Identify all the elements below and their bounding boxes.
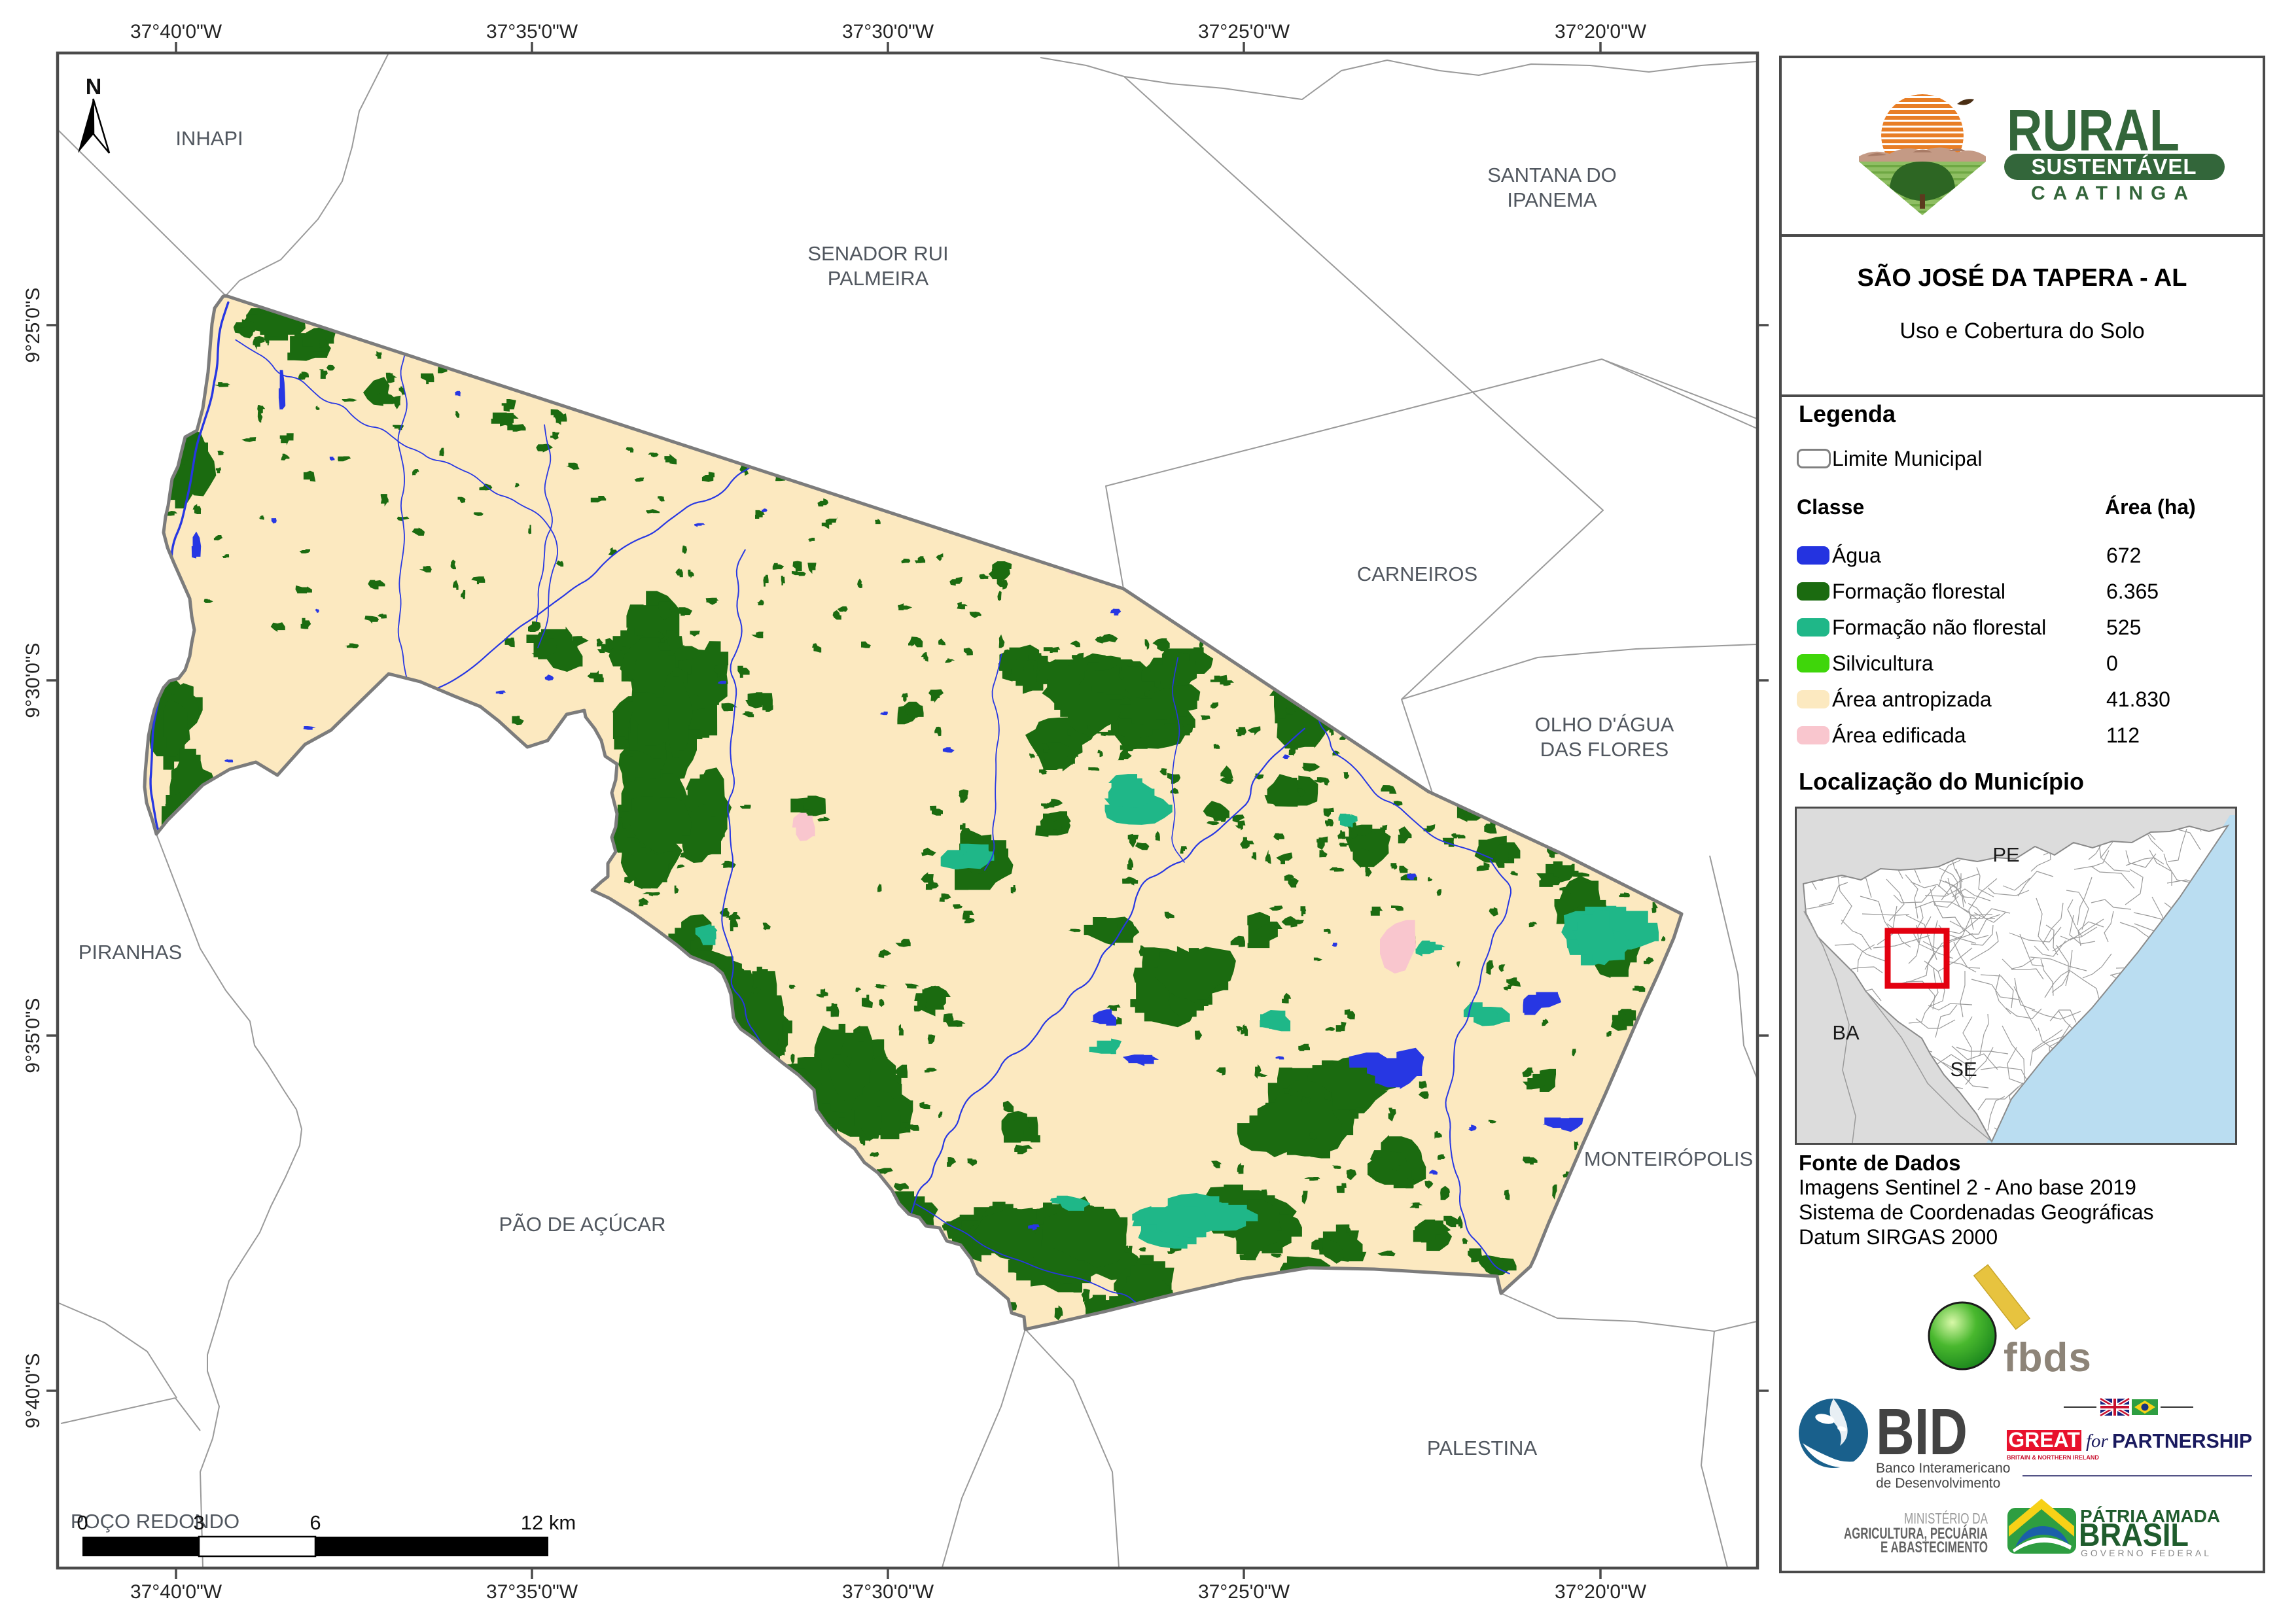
svg-text:MONTEIRÓPOLIS: MONTEIRÓPOLIS: [1584, 1147, 1753, 1170]
svg-text:37°20'0"W: 37°20'0"W: [1555, 1581, 1647, 1603]
svg-text:37°35'0"W: 37°35'0"W: [486, 1581, 578, 1603]
svg-text:fbds: fbds: [2004, 1335, 2092, 1380]
svg-text:GREAT: GREAT: [2008, 1428, 2080, 1452]
svg-text:for: for: [2086, 1431, 2109, 1452]
svg-text:PE: PE: [1992, 843, 2019, 866]
svg-text:SE: SE: [1950, 1058, 1977, 1081]
svg-text:BRITAIN & NORTHERN IRELAND: BRITAIN & NORTHERN IRELAND: [2007, 1454, 2099, 1461]
svg-text:12 km: 12 km: [521, 1511, 576, 1534]
svg-text:BID: BID: [1876, 1395, 1968, 1469]
svg-text:Banco Interamericano: Banco Interamericano: [1876, 1461, 2010, 1476]
svg-text:9°35'0"S: 9°35'0"S: [22, 998, 44, 1073]
svg-text:INHAPI: INHAPI: [175, 127, 243, 150]
svg-text:PARTNERSHIP: PARTNERSHIP: [2112, 1429, 2252, 1452]
svg-text:GOVERNO FEDERAL: GOVERNO FEDERAL: [2081, 1548, 2212, 1558]
svg-text:37°20'0"W: 37°20'0"W: [1555, 21, 1647, 43]
svg-text:37°30'0"W: 37°30'0"W: [842, 1581, 934, 1603]
svg-text:9°25'0"S: 9°25'0"S: [22, 287, 44, 362]
svg-text:PIRANHAS: PIRANHAS: [79, 941, 182, 964]
svg-text:37°40'0"W: 37°40'0"W: [130, 1581, 222, 1603]
svg-text:PÃO DE AÇÚCAR: PÃO DE AÇÚCAR: [499, 1213, 666, 1236]
svg-text:DAS FLORES: DAS FLORES: [1540, 738, 1669, 761]
svg-text:CAATINGA: CAATINGA: [2031, 183, 2196, 204]
svg-text:OLHO D'ÁGUA: OLHO D'ÁGUA: [1535, 713, 1674, 736]
svg-text:N: N: [86, 75, 102, 99]
svg-text:9°30'0"S: 9°30'0"S: [22, 642, 44, 718]
svg-text:de Desenvolvimento: de Desenvolvimento: [1876, 1476, 2000, 1491]
svg-text:IPANEMA: IPANEMA: [1507, 188, 1597, 211]
svg-text:37°30'0"W: 37°30'0"W: [842, 21, 934, 43]
svg-text:PALMEIRA: PALMEIRA: [828, 267, 929, 290]
svg-text:0: 0: [77, 1511, 88, 1534]
svg-text:SANTANA DO: SANTANA DO: [1487, 164, 1617, 186]
svg-text:E ABASTECIMENTO: E ABASTECIMENTO: [1881, 1539, 1988, 1556]
svg-text:37°25'0"W: 37°25'0"W: [1198, 21, 1290, 43]
svg-text:9°40'0"S: 9°40'0"S: [22, 1353, 44, 1428]
svg-text:3: 3: [193, 1511, 204, 1534]
svg-text:BA: BA: [1832, 1021, 1860, 1044]
svg-text:SUSTENTÁVEL: SUSTENTÁVEL: [2031, 154, 2197, 179]
svg-text:PALESTINA: PALESTINA: [1427, 1437, 1538, 1459]
svg-text:37°25'0"W: 37°25'0"W: [1198, 1581, 1290, 1603]
svg-text:SENADOR RUI: SENADOR RUI: [807, 242, 948, 265]
svg-text:POÇO REDONDO: POÇO REDONDO: [71, 1510, 239, 1533]
svg-text:37°35'0"W: 37°35'0"W: [486, 21, 578, 43]
svg-text:37°40'0"W: 37°40'0"W: [130, 21, 222, 43]
svg-text:CARNEIROS: CARNEIROS: [1357, 563, 1477, 585]
svg-text:6: 6: [309, 1511, 321, 1534]
